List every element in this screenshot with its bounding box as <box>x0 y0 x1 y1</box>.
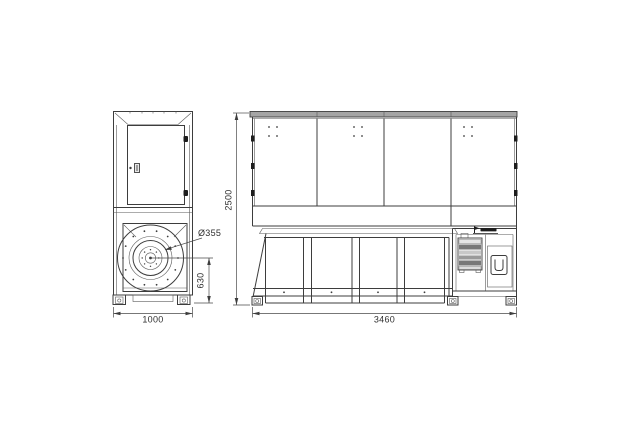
dim-side-width: 1000 <box>114 307 193 325</box>
foot-front-left <box>252 297 263 306</box>
drawing-canvas: Ø355 630 1000 <box>0 0 640 427</box>
side-base <box>113 295 193 305</box>
dim-overall-width: 3460 <box>253 307 517 325</box>
bin-section <box>253 234 452 304</box>
front-feet <box>252 297 517 306</box>
dim-label-diameter: Ø355 <box>198 228 221 238</box>
bin-ledge <box>260 229 458 234</box>
base-plate <box>133 295 173 302</box>
control-bay <box>453 227 517 297</box>
hopper-diagonal <box>253 234 266 298</box>
cabinet <box>114 112 193 296</box>
dim-label-3460: 3460 <box>374 315 395 325</box>
dim-label-630: 630 <box>196 273 206 289</box>
fan-housing <box>118 224 188 292</box>
electrical-panel <box>458 234 482 273</box>
middle-band <box>253 206 517 226</box>
door-hinge-top <box>184 136 189 142</box>
screw-cluster-panel2 <box>353 126 363 137</box>
roof-strip <box>250 112 517 119</box>
side-view: Ø355 630 1000 <box>113 112 221 325</box>
dim-overall-height: 2500 <box>224 113 251 305</box>
front-view: 2500 3460 <box>224 112 518 325</box>
door-handle-icon <box>495 260 503 271</box>
dim-label-2500: 2500 <box>224 189 234 210</box>
foot-front-right <box>506 297 517 306</box>
door-latch <box>129 164 139 173</box>
brand-logo-icon <box>473 227 498 234</box>
technical-drawing: Ø355 630 1000 <box>0 0 640 427</box>
door-handle-recess <box>491 256 507 275</box>
foot-left <box>113 295 126 305</box>
service-door <box>488 246 513 287</box>
dim-label-1000: 1000 <box>142 315 163 325</box>
door-hinge-bottom <box>184 190 189 196</box>
screw-cluster-panel4 <box>463 126 473 137</box>
foot-front-middle <box>448 297 459 306</box>
foot-right <box>178 295 191 305</box>
screw-cluster-panel1 <box>268 126 278 137</box>
